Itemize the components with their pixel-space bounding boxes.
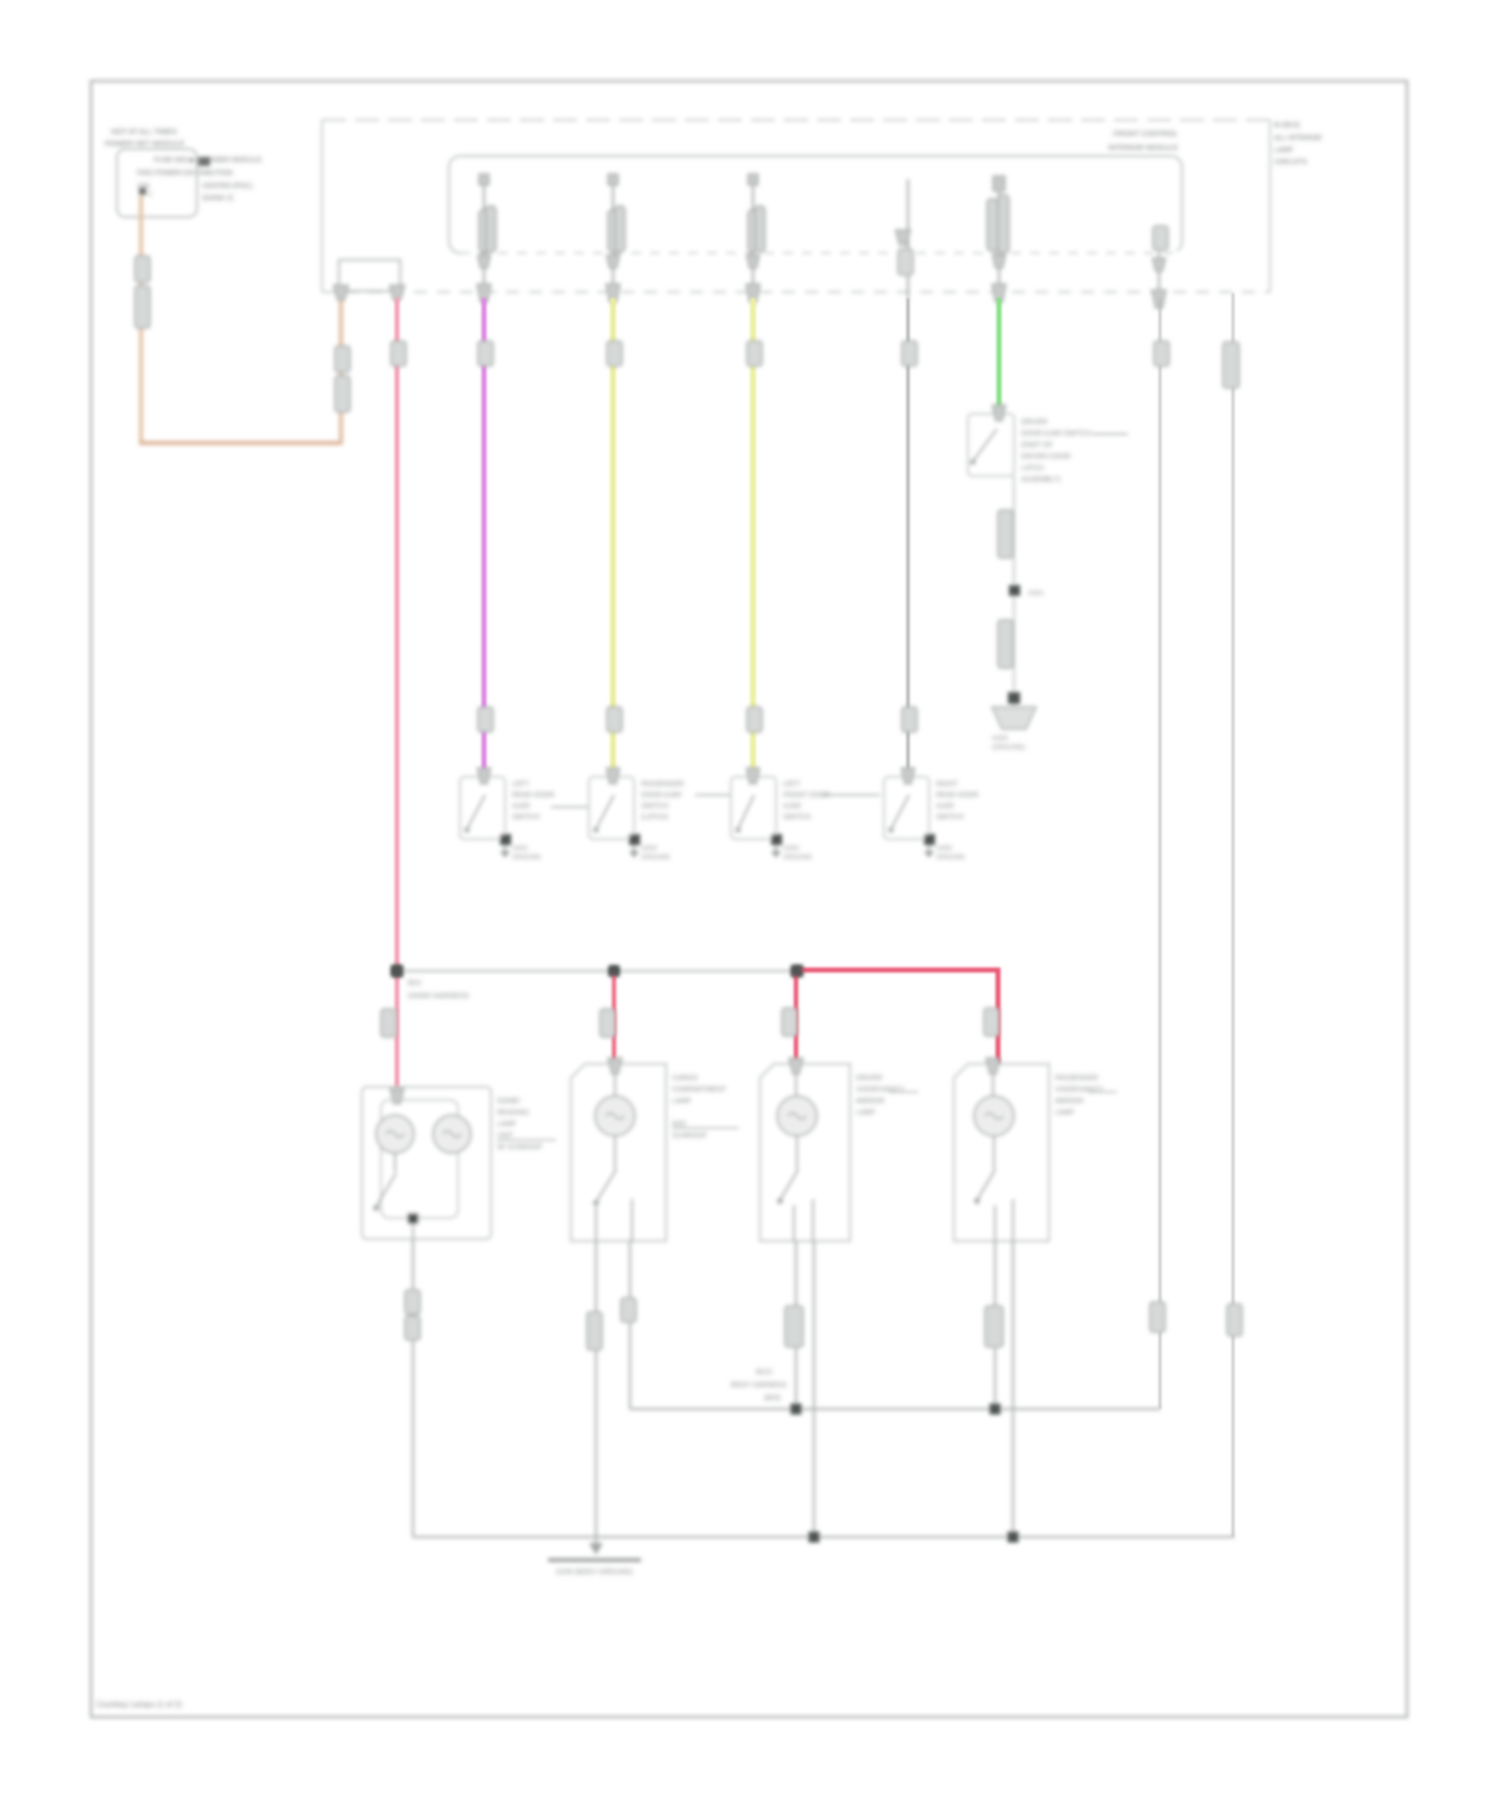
svg-text:LAMP: LAMP [1055, 1110, 1074, 1117]
svg-text:PASSENGER: PASSENGER [641, 781, 684, 788]
svg-text:PASSENGER: PASSENGER [1055, 1075, 1098, 1082]
svg-text:(GANG 2): (GANG 2) [202, 195, 233, 202]
svg-text:(B/O): (B/O) [764, 1395, 781, 1402]
svg-text:LAMP: LAMP [497, 1121, 516, 1128]
svg-text:Courtesy Lamps (1 of 2): Courtesy Lamps (1 of 2) [96, 1700, 182, 1709]
svg-text:FRONT CONTROL: FRONT CONTROL [1114, 129, 1178, 138]
svg-text:DRIVER DOOR: DRIVER DOOR [1021, 454, 1070, 461]
svg-text:DOOR AJAR SWITCH: DOOR AJAR SWITCH [1021, 431, 1091, 438]
svg-text:SWITCH: SWITCH [936, 814, 964, 821]
svg-text:DOOR AJAR: DOOR AJAR [641, 792, 681, 799]
svg-text:G302: G302 [512, 845, 528, 852]
svg-text:SUNROOF: SUNROOF [672, 1133, 707, 1140]
svg-text:READING: READING [497, 1110, 529, 1117]
svg-text:MIRROR: MIRROR [1055, 1098, 1083, 1105]
svg-text:CENTER (PDC): CENTER (PDC) [202, 183, 252, 190]
svg-text:F932 POWER DISTRIBUTION: F932 POWER DISTRIBUTION [137, 170, 233, 177]
svg-text:POWER NET MODULE: POWER NET MODULE [105, 139, 184, 148]
svg-text:GROUND: GROUND [783, 854, 812, 861]
svg-text:CARGO: CARGO [672, 1075, 698, 1082]
svg-text:LEFT: LEFT [783, 781, 801, 788]
svg-text:LAMP: LAMP [1274, 147, 1293, 154]
svg-text:INTERIOR MODULE: INTERIOR MODULE [1108, 143, 1178, 152]
svg-text:AJAR: AJAR [783, 803, 801, 810]
svg-text:GROUND: GROUND [936, 854, 965, 861]
svg-text:(GROUND): (GROUND) [992, 744, 1025, 751]
svg-text:SWITCH: SWITCH [641, 803, 669, 810]
svg-text:SWITCH: SWITCH [783, 814, 811, 821]
svg-text:LEFT: LEFT [512, 781, 530, 788]
svg-text:ASSEMBLY): ASSEMBLY) [1021, 477, 1061, 484]
svg-text:MIRROR: MIRROR [856, 1098, 884, 1105]
svg-text:DOME/: DOME/ [497, 1098, 520, 1105]
svg-text:BODY HARNESS: BODY HARNESS [731, 1382, 787, 1389]
svg-text:LAMP: LAMP [856, 1110, 875, 1117]
svg-text:COMPARTMENT: COMPARTMENT [672, 1087, 727, 1094]
svg-text:AJAR: AJAR [936, 803, 954, 810]
svg-text:W/O: W/O [672, 1121, 687, 1128]
svg-text:CIRCUITS: CIRCUITS [1274, 159, 1307, 166]
svg-text:G303: G303 [641, 845, 657, 852]
svg-text:(PART OF: (PART OF [1021, 442, 1053, 449]
svg-text:G304: G304 [783, 845, 799, 852]
svg-text:AJAR: AJAR [512, 803, 530, 810]
svg-text:GROUND: GROUND [641, 854, 670, 861]
svg-text:ALL INTERIOR: ALL INTERIOR [1274, 135, 1322, 142]
svg-text:B222: B222 [756, 1369, 772, 1376]
svg-text:SWITCH: SWITCH [512, 814, 540, 821]
svg-text:DOOR HARNESS: DOOR HARNESS [408, 991, 469, 1000]
svg-text:B22: B22 [408, 978, 421, 987]
svg-text:LAMP: LAMP [672, 1098, 691, 1105]
svg-text:REAR DOOR: REAR DOOR [936, 792, 978, 799]
svg-text:G305: G305 [936, 845, 952, 852]
svg-text:DRIVER: DRIVER [856, 1075, 882, 1082]
svg-text:B+(B10): B+(B10) [1274, 122, 1300, 129]
svg-text:REAR DOOR: REAR DOOR [512, 792, 554, 799]
svg-text:UNIT: UNIT [497, 1133, 514, 1140]
svg-text:2: 2 [148, 191, 152, 198]
svg-text:G200 (BODY GROUND): G200 (BODY GROUND) [556, 1569, 633, 1576]
svg-text:RIGHT: RIGHT [936, 781, 959, 788]
svg-text:LATCH: LATCH [1021, 465, 1043, 472]
svg-text:HOT AT ALL TIMES: HOT AT ALL TIMES [111, 127, 177, 136]
svg-text:G300: G300 [992, 735, 1008, 742]
svg-text:W/ SUNROOF: W/ SUNROOF [497, 1144, 543, 1151]
svg-text:GROUND: GROUND [512, 854, 541, 861]
svg-text:DRIVER: DRIVER [1021, 419, 1047, 426]
svg-text:G301: G301 [1028, 590, 1044, 597]
svg-text:(LATCH): (LATCH) [641, 814, 668, 821]
